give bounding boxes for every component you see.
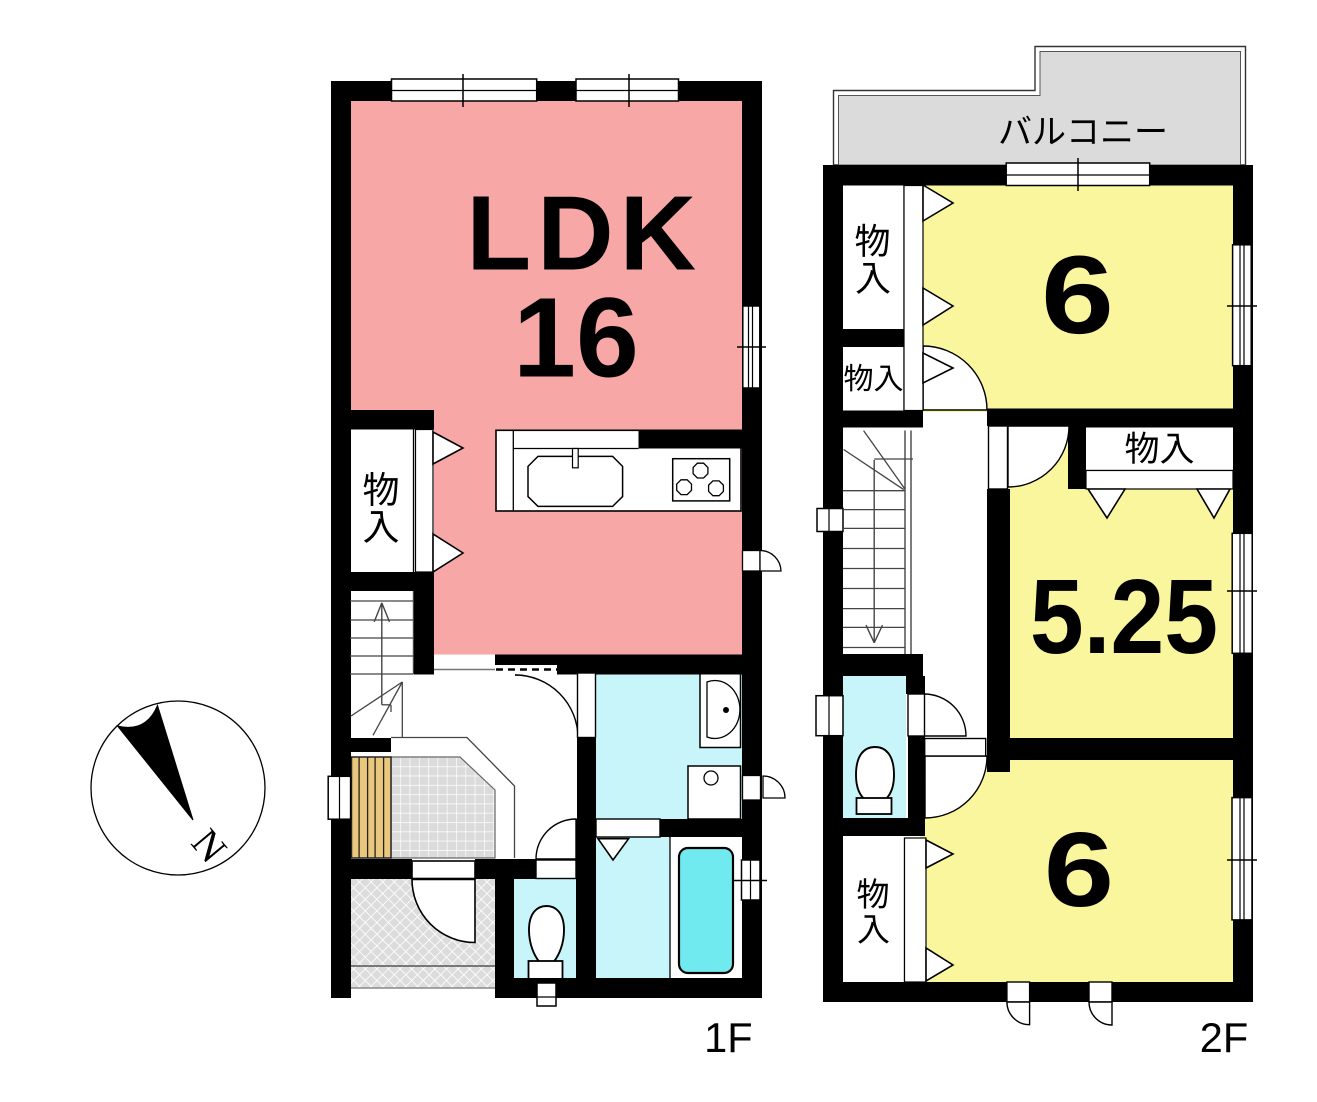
- svg-text:6: 6: [1041, 232, 1114, 356]
- svg-text:5.25: 5.25: [1030, 558, 1218, 676]
- svg-text:1F: 1F: [704, 1014, 752, 1061]
- svg-text:6: 6: [1044, 810, 1114, 928]
- svg-text:16: 16: [513, 275, 639, 401]
- svg-text:2F: 2F: [1200, 1014, 1248, 1061]
